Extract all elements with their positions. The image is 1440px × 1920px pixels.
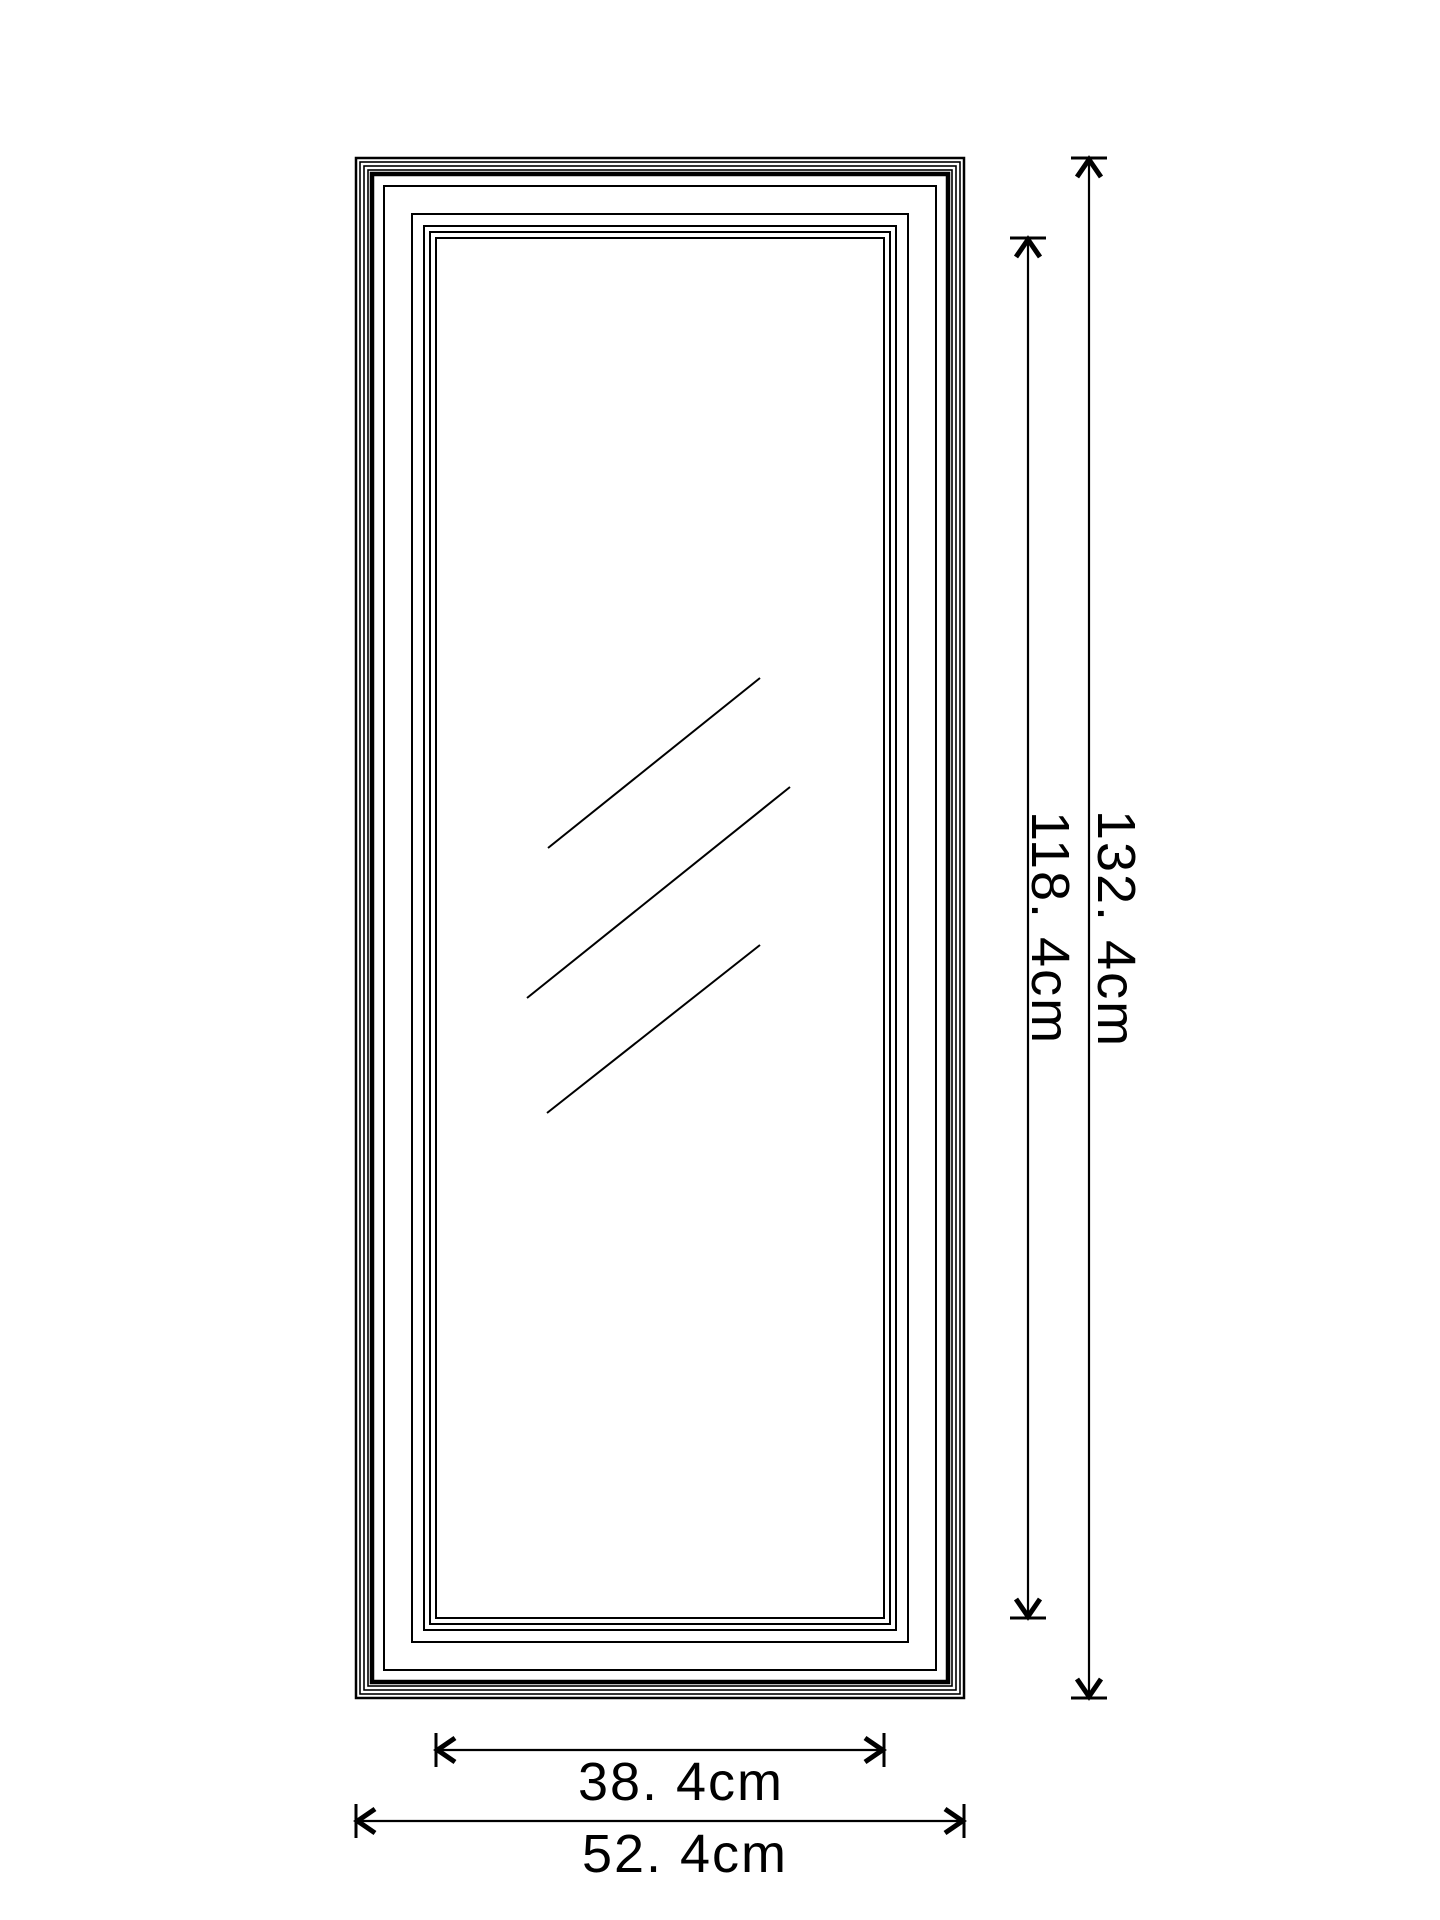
frame-molding-band bbox=[372, 174, 948, 1682]
frame-molding-line bbox=[430, 232, 890, 1624]
frame-molding-line bbox=[424, 226, 896, 1630]
dim-inner-width: 38. 4cm bbox=[436, 1733, 884, 1812]
diagram-canvas: 132. 4cm 118. 4cm 38. 4cm 52. bbox=[0, 0, 1440, 1920]
dim-inner-height: 118. 4cm bbox=[1010, 238, 1080, 1618]
dim-label-inner-height: 118. 4cm bbox=[1020, 811, 1080, 1045]
mirror-dimension-diagram: 132. 4cm 118. 4cm 38. 4cm 52. bbox=[0, 0, 1440, 1920]
frame-outer-edge bbox=[356, 158, 964, 1698]
frame-molding-line bbox=[412, 214, 908, 1642]
glass-shine-line bbox=[527, 787, 790, 998]
frame-molding-line bbox=[368, 170, 952, 1686]
mirror-glass bbox=[527, 678, 790, 1113]
dim-label-outer-height: 132. 4cm bbox=[1086, 810, 1146, 1048]
mirror-edge bbox=[436, 238, 884, 1618]
dim-label-outer-width: 52. 4cm bbox=[582, 1824, 788, 1884]
glass-shine-line bbox=[548, 678, 760, 848]
glass-shine-line bbox=[547, 945, 760, 1113]
frame-molding-line bbox=[384, 186, 936, 1670]
frame-molding-line bbox=[364, 166, 956, 1690]
dim-label-inner-width: 38. 4cm bbox=[578, 1752, 784, 1812]
frame-molding-line bbox=[360, 162, 960, 1694]
dim-outer-width: 52. 4cm bbox=[356, 1804, 964, 1884]
dim-outer-height: 132. 4cm bbox=[1071, 158, 1146, 1698]
mirror-frame bbox=[356, 158, 964, 1698]
